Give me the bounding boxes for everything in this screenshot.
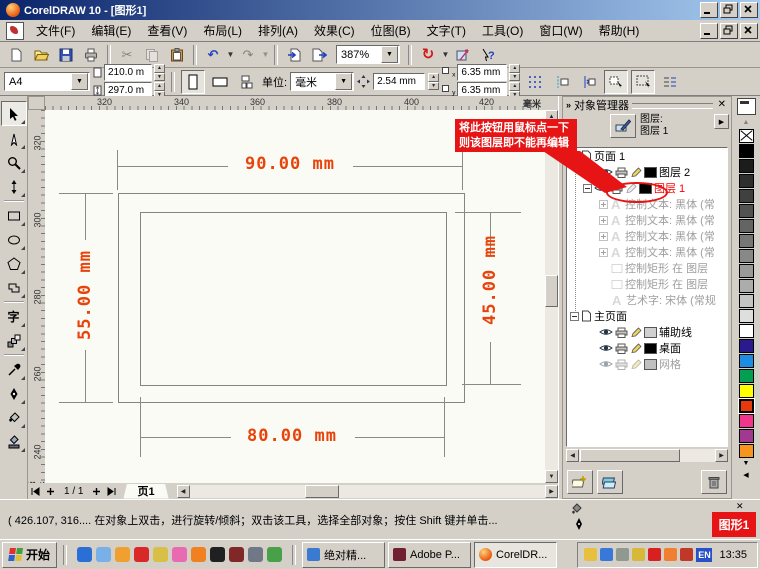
printer-icon[interactable] (615, 167, 628, 178)
task-button-coreldraw[interactable]: CorelDR... (474, 542, 557, 568)
taskbar-separator (292, 545, 296, 565)
text-object-icon: A (610, 230, 623, 242)
callout-tooltip: 将此按钮用鼠标点一下 则该图层即不能再编辑 (455, 119, 577, 152)
docker-collapse-icon[interactable]: » (566, 100, 571, 110)
taskbar: 开始 绝对精... Adobe P... CorelDR... (0, 539, 760, 569)
start-label: 开始 (26, 546, 50, 563)
paper-height-icon (93, 85, 102, 96)
docker-scroll-thumb[interactable] (580, 449, 680, 462)
system-tray: EN 13:35 (577, 542, 758, 568)
task-icon (479, 548, 492, 561)
doc-close-button[interactable] (740, 23, 758, 39)
menu-text[interactable]: 文字(T) (419, 19, 474, 42)
eyedropper-tool[interactable] (2, 358, 26, 381)
v-ruler-tick: 320 (33, 135, 43, 150)
pencil-icon[interactable] (630, 343, 642, 354)
text-object-icon: A (610, 246, 623, 258)
doc-restore-button[interactable] (720, 23, 738, 39)
tree-label: 控制文本: 黑体 (常 (625, 212, 715, 228)
palette-swatch[interactable] (739, 414, 754, 428)
h-ruler-tick: 380 (327, 97, 342, 107)
palette-swatch[interactable] (739, 219, 754, 233)
tray-antivirus-icon[interactable] (648, 548, 661, 561)
nudge-icon (357, 75, 370, 88)
dim-tick (59, 193, 113, 194)
new-master-layer-button[interactable] (597, 470, 623, 494)
menu-window[interactable]: 窗口(W) (531, 19, 590, 42)
status-bar: ( 426.107, 316.... 在对象上双击，进行旋转/倾斜；双击该工具，… (0, 499, 760, 539)
paper-preset-arrow[interactable]: ▼ (71, 73, 88, 90)
menu-edit[interactable]: 编辑(E) (83, 19, 139, 42)
docker-bottom-toolbar (563, 466, 731, 498)
status-hint-text: ( 426.107, 316.... 在对象上双击，进行旋转/倾斜；双击该工具，… (8, 512, 498, 528)
docker-rule (632, 103, 713, 109)
text-object-icon: A (610, 214, 623, 226)
dim-tick (444, 397, 445, 457)
page-tab[interactable]: 页1 (123, 484, 168, 499)
restore-button[interactable] (720, 2, 738, 18)
paper-preset-value: A4 (5, 76, 71, 88)
canvas-horizontal-scrollbar[interactable]: ◀ ▶ (177, 485, 558, 498)
canvas-vertical-scrollbar[interactable]: ▲ ▼ (545, 110, 558, 483)
outline-status-icon (574, 517, 584, 531)
palette-swatch[interactable] (739, 384, 754, 398)
refresh-button[interactable]: ↻ (416, 43, 440, 67)
tray-volume-icon[interactable] (584, 548, 597, 561)
dimension-label-left[interactable]: 55.00 mm (75, 235, 95, 355)
first-page-button[interactable] (28, 484, 43, 498)
expand-plus-icon[interactable] (599, 232, 608, 241)
fill-status-icon (570, 502, 583, 516)
v-ruler-tick: 240 (33, 444, 43, 459)
h-ruler-tick: 400 (404, 97, 419, 107)
tray-network-icon[interactable] (600, 548, 613, 561)
edit-across-layers-button[interactable] (610, 114, 636, 138)
artistic-text-icon: A (611, 294, 624, 306)
menu-view[interactable]: 查看(V) (139, 19, 195, 42)
inner-rectangle-object[interactable] (140, 212, 447, 386)
layer-color-swatch[interactable] (644, 359, 657, 370)
object-manager-docker: » 对象管理器 ✕ 图层: 图层 1 ▶ 页面 1 (562, 96, 732, 499)
palette-swatch[interactable] (739, 264, 754, 278)
layer-color-swatch[interactable] (644, 327, 657, 338)
zoom-level-value: 387% (337, 49, 381, 61)
coreldraw-window: CorelDRAW 10 - [图形1] 文件(F) 编辑(E) 查看(V) 布… (0, 0, 760, 569)
docker-title: 对象管理器 (574, 97, 629, 113)
export-button[interactable] (307, 43, 331, 67)
minimize-button[interactable] (700, 2, 718, 18)
quick-launch-notes-icon[interactable] (153, 547, 168, 562)
palette-swatch[interactable] (739, 339, 754, 353)
menu-bitmaps[interactable]: 位图(B) (363, 19, 419, 42)
quick-launch-ie-icon[interactable] (77, 547, 92, 562)
quick-launch-bar (73, 547, 286, 562)
palette-swatch[interactable] (739, 234, 754, 248)
help-button[interactable]: ? (476, 43, 500, 67)
tree-row-paragraph-text[interactable]: A 控制文本: 黑体 (常 (567, 244, 727, 260)
collapse-minus-icon[interactable] (583, 184, 592, 193)
palette-swatch[interactable] (739, 174, 754, 188)
copy-button[interactable] (140, 43, 164, 67)
tree-row-master-page[interactable]: 主页面 (567, 308, 727, 324)
palette-swatch[interactable] (739, 309, 754, 323)
interactive-blend-tool[interactable] (2, 329, 26, 352)
tree-label: 主页面 (594, 308, 627, 324)
basic-shapes-tool[interactable] (2, 276, 26, 299)
vertical-ruler[interactable]: 320 300 280 260 240 毫米 (28, 110, 46, 483)
expand-plus-icon[interactable] (599, 200, 608, 209)
dim-line (141, 437, 231, 438)
menu-bar: 文件(F) 编辑(E) 查看(V) 布局(L) 排列(A) 效果(C) 位图(B… (0, 20, 760, 42)
dim-tick (117, 150, 118, 190)
drawing-page[interactable]: 90.00 mm 80.00 mm 55.00 mm 45.00 mm (45, 110, 545, 483)
printer-icon[interactable] (615, 343, 628, 354)
paper-width-spinner[interactable]: ▲▼ (154, 64, 165, 81)
palette-swatch[interactable] (739, 189, 754, 203)
layer-color-swatch[interactable] (644, 167, 657, 178)
svg-text:A: A (611, 214, 621, 226)
snap-to-grid-button[interactable] (523, 70, 547, 94)
tree-label: 控制矩形 在 图层 (625, 260, 708, 276)
title-bar[interactable]: CorelDRAW 10 - [图形1] (0, 0, 760, 20)
doc-minimize-button[interactable] (700, 23, 718, 39)
printer-icon[interactable] (615, 327, 628, 338)
tree-label: 控制文本: 黑体 (常 (625, 244, 715, 260)
windows-logo-icon (8, 548, 24, 562)
ruler-origin-corner[interactable] (28, 96, 45, 110)
palette-swatch[interactable] (739, 204, 754, 218)
rectangle-tool[interactable] (2, 204, 26, 227)
menu-help[interactable]: 帮助(H) (591, 19, 648, 42)
polygon-tool[interactable] (2, 252, 26, 275)
dim-line (85, 194, 86, 240)
dim-tick (59, 402, 113, 403)
paper-width-field[interactable]: 210.0 m (104, 64, 152, 81)
refresh-dropdown[interactable]: ▼ (441, 44, 450, 66)
toolbar-separator (274, 45, 278, 65)
menu-layout[interactable]: 布局(L) (195, 19, 250, 42)
pencil-icon[interactable] (630, 359, 642, 370)
tray-pen-icon[interactable] (632, 548, 645, 561)
tree-label: 图层 2 (659, 164, 690, 180)
undo-dropdown[interactable]: ▼ (226, 44, 235, 66)
eye-icon[interactable] (599, 167, 613, 177)
print-button[interactable] (79, 43, 103, 67)
units-combo-arrow[interactable]: ▼ (335, 73, 352, 90)
tree-label: 页面 1 (594, 148, 625, 164)
document-badge: 图形1 (712, 512, 756, 537)
horizontal-ruler[interactable]: 320 340 360 380 400 420 毫米 (45, 96, 545, 111)
page-icon (581, 310, 592, 322)
palette-expand-icon[interactable]: ◀ (738, 469, 755, 480)
page-tab-label: 页1 (137, 483, 154, 499)
toolbar-separator (408, 45, 412, 65)
close-button[interactable] (740, 2, 758, 18)
open-button[interactable] (29, 43, 53, 67)
tree-row-artistic-text[interactable]: A 艺术字: 宋体 (常规 (567, 292, 727, 308)
save-button[interactable] (54, 43, 78, 67)
tree-label: 网格 (659, 356, 681, 372)
new-button[interactable] (4, 43, 28, 67)
zoom-tool[interactable] (2, 151, 26, 174)
interactive-fill-tool[interactable] (2, 430, 26, 453)
scroll-right-button[interactable]: ▶ (545, 485, 558, 498)
docker-close-icon[interactable]: ✕ (716, 99, 728, 110)
start-button[interactable]: 开始 (2, 542, 57, 568)
redo-button[interactable]: ↷ (236, 43, 260, 67)
docker-flyout-button[interactable]: ▶ (714, 114, 729, 129)
dup-x-field[interactable]: 6.35 mm (457, 64, 507, 81)
dimension-tool[interactable] (2, 175, 26, 198)
menu-effects[interactable]: 效果(C) (306, 19, 363, 42)
page-counter: 1 / 1 (64, 486, 83, 497)
tree-row-desktop[interactable]: 桌面 (567, 340, 727, 356)
tree-row-layer2[interactable]: 图层 2 (567, 164, 727, 180)
menu-file[interactable]: 文件(F) (28, 19, 83, 42)
shape-tool[interactable] (2, 127, 26, 150)
rectangle-object-icon (611, 279, 623, 290)
scroll-down-button[interactable]: ▼ (545, 470, 558, 483)
docker-horizontal-scrollbar[interactable]: ◀ ▶ (566, 449, 728, 462)
paper-size-group: 210.0 m ▲▼ 297.0 m ▲▼ (93, 64, 165, 99)
window-title: CorelDRAW 10 - [图形1] (24, 2, 146, 18)
quick-launch-tv-icon[interactable] (229, 547, 244, 562)
page-icon (581, 150, 592, 162)
task-label: 绝对精... (324, 547, 366, 563)
snap-to-objects-button[interactable]: ✱ (577, 70, 601, 94)
tree-row-page1[interactable]: 页面 1 (567, 148, 727, 164)
pick-tool[interactable] (1, 101, 27, 126)
dim-line (118, 166, 228, 167)
quick-launch-media-icon[interactable] (115, 547, 130, 562)
palette-swatch[interactable] (739, 354, 754, 368)
layer-color-swatch[interactable] (644, 343, 657, 354)
docker-header: » 对象管理器 ✕ (563, 97, 731, 112)
nudge-spinner[interactable]: ▲▼ (428, 73, 439, 90)
palette-swatch[interactable] (739, 324, 754, 338)
page-navigation-bar: 1 / 1 页1 ◀ ▶ (28, 483, 558, 499)
add-page-after-button[interactable] (89, 484, 104, 498)
tree-row-paragraph-text[interactable]: A 控制文本: 黑体 (常 (567, 228, 727, 244)
svg-text:?: ? (488, 50, 495, 62)
app-icon (6, 3, 20, 17)
expand-plus-icon[interactable] (599, 248, 608, 257)
new-layer-button[interactable] (567, 470, 593, 494)
menu-arrange[interactable]: 排列(A) (250, 19, 306, 42)
docker-scroll-left[interactable]: ◀ (566, 449, 579, 462)
palette-swatch[interactable] (739, 399, 754, 413)
palette-swatch[interactable] (739, 369, 754, 383)
treat-as-filled-button[interactable] (604, 70, 628, 94)
tree-label: 辅助线 (659, 324, 692, 340)
printer-icon[interactable] (615, 359, 628, 370)
eye-icon[interactable] (599, 343, 613, 353)
palette-swatch[interactable] (739, 279, 754, 293)
v-ruler-tick: 260 (33, 366, 43, 381)
task-button-1[interactable]: 绝对精... (302, 542, 385, 568)
taskbar-clock: 13:35 (715, 549, 751, 561)
fill-tool[interactable] (2, 406, 26, 429)
undo-button[interactable]: ↶ (201, 43, 225, 67)
active-layer-name: 图层 1 (640, 126, 668, 138)
palette-swatch[interactable] (739, 144, 754, 158)
quick-launch-balloon-icon[interactable] (172, 547, 187, 562)
h-scroll-thumb[interactable] (305, 485, 339, 498)
quick-launch-browser-icon[interactable] (134, 547, 149, 562)
h-ruler-tick: 360 (250, 97, 265, 107)
task-button-2[interactable]: Adobe P... (388, 542, 471, 568)
dim-tick (462, 384, 521, 385)
dimension-label-bottom[interactable]: 80.00 mm (232, 426, 352, 446)
paste-button[interactable] (165, 43, 189, 67)
dup-x-icon: x (442, 67, 455, 79)
dim-line (85, 350, 86, 402)
landscape-button[interactable] (208, 70, 232, 94)
h-ruler-tick: 420 (479, 97, 494, 107)
taskbar-separator (63, 545, 67, 565)
h-ruler-unit: 毫米 (523, 97, 541, 110)
marquee-select-button[interactable] (631, 70, 655, 94)
pencil-icon[interactable] (630, 167, 642, 178)
palette-swatch[interactable] (739, 159, 754, 173)
property-bar: A4 ▼ 210.0 m ▲▼ 297.0 m ▲▼ 单位: 毫米 ▼ 2.54… (0, 68, 760, 96)
dup-y-icon: y (442, 85, 455, 97)
color-palette: ▲ ▼ ◀ (732, 96, 760, 499)
language-indicator[interactable]: EN (696, 548, 712, 562)
collapse-minus-icon[interactable] (570, 312, 579, 321)
apply-to-all-pages-icon[interactable] (235, 70, 259, 94)
portrait-button[interactable] (181, 70, 205, 94)
v-ruler-tick: 300 (33, 212, 43, 227)
dim-tick (455, 212, 521, 213)
document-icon[interactable] (6, 22, 24, 40)
task-label: Adobe P... (410, 549, 460, 561)
tree-label: 桌面 (659, 340, 681, 356)
wizard-button[interactable] (451, 43, 475, 67)
h-ruler-tick: 320 (97, 97, 112, 107)
quick-launch-desktop-icon[interactable] (248, 547, 263, 562)
rectangle-object-icon (611, 263, 623, 274)
tree-label: 控制文本: 黑体 (常 (625, 228, 715, 244)
quick-launch-ball-icon[interactable] (191, 547, 206, 562)
eye-icon[interactable] (599, 327, 613, 337)
dimension-label-right[interactable]: 45.00 mm (480, 220, 500, 340)
docker-scroll-right[interactable]: ▶ (715, 449, 728, 462)
toolbar-separator (193, 45, 197, 65)
tree-row-control-rectangle[interactable]: 控制矩形 在 图层 (567, 260, 727, 276)
tree-row-paragraph-text[interactable]: A 控制文本: 黑体 (常 (567, 212, 727, 228)
v-ruler-tick: 280 (33, 289, 43, 304)
dim-tick (462, 150, 463, 190)
v-scroll-thumb[interactable] (545, 275, 558, 307)
paper-preset-combo[interactable]: A4 ▼ (4, 72, 90, 91)
palette-swatch-none[interactable] (739, 129, 754, 143)
toolbar-separator (107, 45, 111, 65)
delete-layer-button[interactable] (701, 470, 727, 494)
add-page-before-button[interactable] (43, 484, 58, 498)
pencil-icon[interactable] (630, 327, 642, 338)
toolbox-separator (4, 301, 24, 303)
dim-line (490, 342, 491, 384)
callout-line1: 将此按钮用鼠标点一下 (459, 121, 573, 136)
units-label: 单位: (262, 74, 287, 90)
tree-label: 控制矩形 在 图层 (625, 276, 708, 292)
task-icon (307, 548, 320, 561)
quick-launch-qq-icon[interactable] (210, 547, 225, 562)
tray-qq-icon[interactable] (680, 548, 693, 561)
outline-tool[interactable] (2, 382, 26, 405)
ellipse-tool[interactable] (2, 228, 26, 251)
propbar-options-button[interactable] (658, 70, 682, 94)
palette-swatch[interactable] (739, 429, 754, 443)
dup-x-spinner[interactable]: ▲▼ (509, 64, 520, 81)
tree-label: 艺术字: 宋体 (常规 (626, 292, 716, 308)
quick-launch-mail-icon[interactable] (96, 547, 111, 562)
snap-to-guidelines-button[interactable] (550, 70, 574, 94)
redo-dropdown[interactable]: ▼ (261, 44, 270, 66)
toolbox: 字 (0, 96, 28, 499)
task-icon (393, 548, 406, 561)
callout-line2: 则该图层即不能再编辑 (459, 136, 573, 151)
text-tool-glyph: 字 (7, 308, 19, 325)
tree-row-grid[interactable]: 网格 (567, 356, 727, 372)
toolbox-separator (4, 354, 24, 356)
zoom-level-combo[interactable]: 387% ▼ (336, 45, 400, 64)
status-close-icon[interactable]: ✕ (736, 501, 744, 512)
last-page-button[interactable] (104, 484, 119, 498)
tree-row-control-rectangle[interactable]: 控制矩形 在 图层 (567, 276, 727, 292)
quick-launch-green-icon[interactable] (267, 547, 282, 562)
tree-row-guides[interactable]: 辅助线 (567, 324, 727, 340)
highlight-circle (606, 182, 668, 203)
palette-swatch[interactable] (739, 444, 754, 458)
collapse-minus-icon[interactable] (570, 152, 579, 161)
cut-button[interactable]: ✂ (115, 43, 139, 67)
h-ruler-tick: 340 (174, 97, 189, 107)
palette-swatch[interactable] (739, 249, 754, 263)
units-value: 毫米 (291, 74, 335, 90)
tray-display-icon[interactable] (616, 548, 629, 561)
zoom-combo-arrow[interactable]: ▼ (381, 46, 398, 63)
palette-options-icon[interactable] (737, 98, 756, 115)
units-combo[interactable]: 毫米 ▼ (290, 72, 354, 91)
v-ruler-unit: 毫米 (28, 476, 46, 484)
propbar-separator (171, 72, 175, 92)
task-label: CorelDR... (496, 549, 547, 561)
dim-line (353, 166, 463, 167)
svg-text:A: A (611, 246, 621, 258)
expand-plus-icon[interactable] (599, 216, 608, 225)
palette-scroll-up[interactable]: ▲ (738, 117, 755, 128)
eye-icon[interactable] (599, 359, 613, 369)
duplicate-distance-group: x 6.35 mm ▲▼ y 6.35 mm ▲▼ (442, 64, 520, 99)
menu-tools[interactable]: 工具(O) (474, 19, 531, 42)
docker-toolbar: 图层: 图层 1 ▶ (563, 112, 731, 148)
tray-ime-icon[interactable] (664, 548, 677, 561)
text-tool[interactable]: 字 (2, 305, 26, 328)
dim-tick (140, 397, 141, 457)
nudge-field[interactable]: 2.54 mm (373, 73, 425, 90)
scroll-left-button[interactable]: ◀ (177, 485, 190, 498)
svg-text:A: A (611, 230, 621, 242)
palette-scroll-down[interactable]: ▼ (738, 458, 755, 469)
dimension-label-top[interactable]: 90.00 mm (230, 154, 350, 174)
dim-line (355, 437, 444, 438)
paper-width-icon (93, 67, 102, 78)
svg-text:A: A (612, 294, 622, 306)
import-button[interactable] (282, 43, 306, 67)
palette-swatch[interactable] (739, 294, 754, 308)
